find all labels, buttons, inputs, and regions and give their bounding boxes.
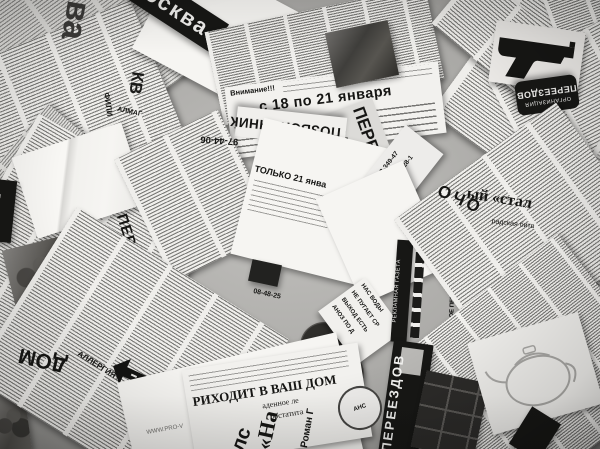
left-banner-text: ПЕРЕЕЗ (0, 179, 2, 241)
phone-08-text: 08-48-25 (253, 288, 282, 301)
masthead-va-letters: ва (56, 0, 96, 43)
almag-attention-text: Внимание!!! (230, 84, 276, 97)
mini-photo-chip (248, 259, 282, 287)
phone-97-text: 97-44-06 (200, 134, 239, 146)
newspaper-collage-photo: осква ва Внимание!!! с 18 по 21 января К… (0, 0, 600, 449)
stamp-text: АНС (353, 403, 367, 413)
